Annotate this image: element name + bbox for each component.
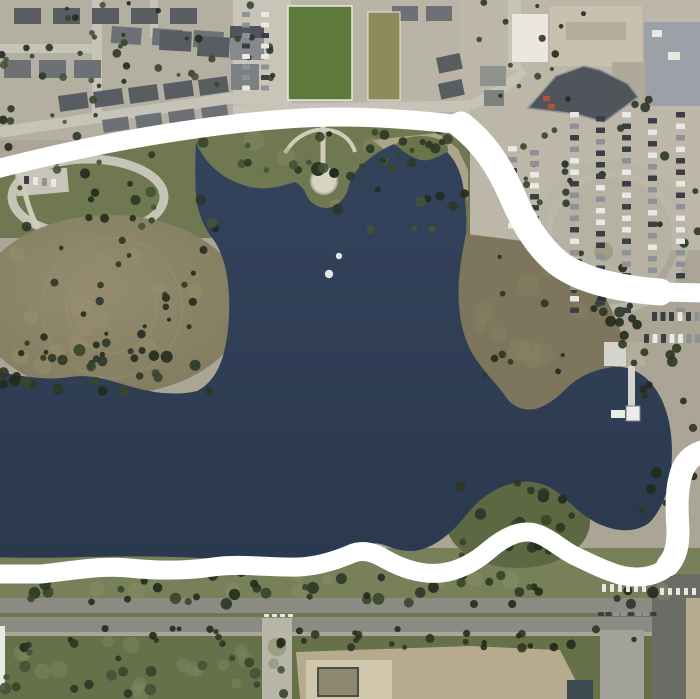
tree	[455, 481, 466, 492]
tree	[131, 354, 139, 362]
tree	[426, 634, 435, 643]
tree	[375, 187, 381, 193]
tree	[336, 573, 347, 584]
tree	[429, 225, 437, 233]
parked-car	[676, 250, 685, 256]
tree	[197, 661, 207, 671]
tree	[459, 539, 466, 546]
tree	[88, 77, 94, 83]
parked-car	[622, 124, 631, 130]
tree	[332, 204, 343, 215]
parked-car	[648, 176, 657, 182]
tree	[46, 44, 54, 52]
crosswalk-dash	[668, 588, 672, 595]
tree	[496, 571, 505, 580]
tree	[96, 297, 104, 305]
parked-car	[530, 150, 539, 156]
tree	[124, 689, 133, 698]
tree	[119, 386, 130, 397]
tree	[515, 587, 525, 597]
tree	[17, 185, 22, 190]
tree	[562, 189, 569, 196]
tree	[128, 348, 134, 354]
tree	[302, 584, 309, 591]
ground-mottle	[91, 311, 109, 329]
tree	[77, 51, 82, 56]
tree	[97, 84, 102, 89]
tree	[25, 341, 30, 346]
tree	[485, 578, 493, 586]
parked-car	[648, 153, 657, 159]
parked-car	[622, 158, 631, 164]
tree	[535, 4, 539, 8]
tree	[527, 487, 535, 495]
tree	[247, 1, 255, 9]
ground-mottle	[76, 321, 92, 337]
tree	[89, 96, 97, 104]
tree	[88, 196, 94, 202]
parked-car	[652, 312, 657, 321]
tree	[206, 626, 213, 633]
tree	[641, 392, 648, 399]
tree	[448, 201, 458, 211]
ground-mottle	[231, 679, 241, 689]
tree	[118, 667, 128, 677]
tree	[415, 196, 426, 207]
parked-car	[570, 147, 579, 153]
tree	[80, 168, 90, 178]
parked-car	[261, 65, 269, 70]
tree	[3, 674, 9, 680]
tree	[620, 331, 629, 340]
tree	[153, 583, 163, 593]
parked-car	[622, 227, 631, 233]
tree	[9, 375, 20, 386]
tree	[119, 237, 126, 244]
ground-mottle	[218, 660, 229, 671]
ground-mottle	[50, 661, 67, 678]
tree	[463, 630, 470, 637]
tree	[264, 167, 270, 173]
tree	[311, 630, 320, 639]
tree	[516, 633, 521, 638]
tree	[277, 638, 286, 647]
parked-car	[242, 75, 250, 80]
tree	[89, 30, 95, 36]
ground-mottle	[24, 310, 39, 325]
tree	[660, 151, 669, 160]
tree	[517, 84, 522, 89]
parked-car	[644, 334, 649, 343]
parked-car	[648, 118, 657, 124]
tree	[631, 637, 636, 642]
tree	[154, 373, 163, 382]
tree	[628, 315, 636, 323]
tree	[353, 637, 359, 643]
tree	[3, 57, 9, 63]
tree	[250, 668, 261, 679]
parked-car	[570, 158, 579, 164]
parked-car	[570, 112, 579, 118]
parked-car	[622, 112, 631, 118]
tree	[581, 11, 586, 16]
tree	[221, 598, 233, 610]
tree	[40, 355, 46, 361]
tree	[106, 670, 117, 681]
tree	[550, 67, 554, 71]
tree	[73, 132, 82, 141]
parked-car	[661, 312, 666, 321]
tree	[556, 523, 566, 533]
tree	[559, 24, 564, 29]
tree	[50, 113, 54, 117]
tree	[191, 271, 196, 276]
tree	[380, 157, 386, 163]
small-building	[484, 90, 504, 106]
tree	[481, 644, 488, 651]
tree	[296, 627, 303, 634]
tree	[517, 643, 526, 652]
tree	[307, 582, 319, 594]
parked-car	[622, 193, 631, 199]
tree	[373, 593, 385, 605]
parked-car	[622, 135, 631, 141]
parked-car	[530, 161, 539, 167]
tree	[93, 341, 100, 348]
tree	[254, 681, 261, 688]
tree	[215, 634, 222, 641]
tree	[261, 588, 272, 599]
crosswalk-dash	[264, 614, 269, 617]
tree	[539, 35, 546, 42]
tree	[552, 127, 558, 133]
tree	[500, 291, 506, 297]
tree	[439, 139, 445, 145]
parked-car	[261, 54, 269, 59]
tree	[161, 351, 173, 363]
tree	[665, 350, 675, 360]
tree	[27, 595, 34, 602]
tree	[541, 132, 548, 139]
tree	[631, 101, 638, 108]
parked-car	[676, 170, 685, 176]
parked-car	[261, 33, 269, 38]
ground-mottle	[234, 644, 247, 657]
parked-car	[678, 334, 683, 343]
tree	[39, 72, 47, 80]
tree	[198, 137, 209, 148]
tree	[329, 168, 339, 178]
tree	[137, 330, 146, 339]
house-roof	[74, 60, 101, 78]
tree	[647, 587, 659, 599]
tree	[145, 684, 157, 696]
parked-car	[622, 181, 631, 187]
tree	[498, 255, 502, 259]
tree	[130, 195, 140, 205]
parked-car	[570, 170, 579, 176]
rooftop-unit	[652, 30, 662, 37]
ground-mottle	[533, 343, 554, 364]
tree	[193, 593, 200, 600]
tree	[639, 507, 645, 513]
parked-car	[648, 141, 657, 147]
tree	[499, 351, 507, 359]
tree	[155, 8, 161, 14]
parked-car	[678, 312, 683, 321]
house-roof	[92, 8, 119, 24]
parked-car	[261, 44, 269, 49]
parked-car	[687, 334, 692, 343]
tree	[578, 250, 584, 256]
tree	[411, 226, 417, 232]
parked-car	[261, 86, 269, 91]
tree	[121, 79, 126, 84]
parked-car	[622, 262, 631, 268]
ground-mottle	[517, 274, 539, 296]
tree	[181, 282, 187, 288]
tree	[277, 666, 285, 674]
tree	[555, 368, 561, 374]
tree	[195, 35, 203, 43]
tree	[395, 626, 401, 632]
tree	[528, 643, 534, 649]
tree	[592, 625, 600, 633]
tree	[523, 181, 530, 188]
tree	[692, 188, 698, 194]
tree	[645, 96, 653, 104]
tree	[25, 642, 32, 649]
parked-car	[596, 116, 605, 122]
ground-mottle	[508, 339, 531, 362]
parked-car	[648, 130, 657, 136]
parked-car	[648, 222, 657, 228]
tree	[63, 120, 67, 124]
tree	[402, 645, 407, 650]
fountain-dot	[336, 253, 342, 259]
tree	[7, 105, 14, 112]
tree	[279, 689, 288, 698]
tree	[395, 152, 401, 158]
ground-mottle	[102, 636, 114, 648]
ground-mottle	[490, 327, 507, 344]
small-structure	[567, 680, 593, 699]
parked-car	[570, 250, 579, 256]
parked-car	[596, 162, 605, 168]
tree	[651, 467, 662, 478]
parked-car	[622, 308, 631, 314]
parked-car	[695, 334, 700, 343]
house-roof	[131, 8, 158, 24]
parked-car	[570, 204, 579, 210]
tree	[657, 221, 663, 227]
parked-car	[648, 187, 657, 193]
tree	[185, 598, 192, 605]
tree	[200, 246, 208, 254]
ground-mottle	[177, 658, 191, 672]
sports-field-green	[288, 6, 352, 100]
tree	[163, 304, 170, 311]
tree	[44, 350, 49, 355]
tree	[53, 166, 61, 174]
parked-car	[42, 178, 47, 186]
tree	[645, 381, 652, 388]
tree	[367, 226, 375, 234]
parked-car	[643, 612, 649, 616]
crosswalk-dash	[602, 584, 606, 592]
rooftop-unit	[668, 52, 680, 60]
tree	[306, 160, 312, 166]
tree	[541, 299, 549, 307]
tree	[562, 200, 570, 208]
tree	[409, 148, 414, 153]
tree	[93, 355, 100, 362]
tree	[91, 189, 99, 197]
parked-car	[570, 124, 579, 130]
tree	[4, 143, 12, 151]
tree	[245, 143, 251, 149]
tree	[307, 594, 313, 600]
tree	[177, 626, 182, 631]
tree	[148, 151, 155, 158]
tree	[81, 311, 87, 317]
tree	[475, 508, 486, 519]
tree	[191, 73, 198, 80]
crosswalk-dash	[618, 584, 622, 592]
parked-car	[648, 164, 657, 170]
tree	[170, 626, 176, 632]
parked-car	[570, 227, 579, 233]
tree	[235, 36, 241, 42]
parked-car	[648, 256, 657, 262]
red-awning	[543, 96, 550, 101]
tree	[98, 386, 108, 396]
parked-car	[596, 220, 605, 226]
tree	[117, 586, 124, 593]
tree	[30, 54, 35, 59]
parked-car	[570, 135, 579, 141]
tree	[124, 596, 131, 603]
tree	[463, 639, 469, 645]
tree	[561, 353, 565, 357]
tree	[149, 350, 160, 361]
tree	[568, 512, 575, 519]
tree	[491, 355, 498, 362]
tree	[428, 582, 439, 593]
tree	[85, 214, 92, 221]
parked-car	[530, 183, 539, 189]
tree	[65, 15, 71, 21]
parked-car	[676, 181, 685, 187]
tree	[425, 141, 433, 149]
parked-car	[676, 124, 685, 130]
parked-car	[648, 199, 657, 205]
parked-car	[51, 179, 56, 187]
tree	[289, 160, 298, 169]
tree	[57, 355, 67, 365]
parked-car	[648, 210, 657, 216]
parked-car	[242, 65, 250, 70]
parked-car	[636, 612, 642, 616]
road-median	[0, 613, 700, 617]
tree	[121, 33, 125, 37]
tree	[167, 318, 171, 322]
tree	[372, 129, 379, 136]
tree	[615, 318, 624, 327]
ground-mottle	[188, 285, 203, 300]
pier-head	[626, 406, 640, 421]
tree	[138, 223, 145, 230]
red-awning	[548, 104, 555, 109]
tree	[146, 666, 157, 677]
parked-car	[648, 233, 657, 239]
tree	[407, 158, 416, 167]
parked-car	[648, 245, 657, 251]
tree	[327, 131, 333, 137]
tree	[26, 649, 33, 656]
tree	[97, 282, 104, 289]
tree	[162, 292, 167, 297]
tree	[363, 592, 370, 599]
tree	[127, 181, 133, 187]
tree	[88, 599, 95, 606]
tree	[127, 253, 132, 258]
parked-car	[676, 204, 685, 210]
tree	[508, 63, 513, 68]
tree	[526, 584, 532, 590]
tree	[562, 168, 569, 175]
tree	[96, 160, 101, 165]
crosswalk-dash	[660, 588, 664, 595]
parked-car	[261, 75, 269, 80]
tree	[520, 143, 527, 150]
tree	[206, 217, 217, 228]
parked-car	[653, 334, 658, 343]
tree	[123, 62, 130, 69]
tree	[190, 360, 201, 371]
parked-car	[676, 262, 685, 268]
tree	[59, 246, 64, 251]
tree	[91, 377, 100, 386]
tree	[436, 192, 445, 201]
tree	[420, 139, 426, 145]
tree	[640, 348, 648, 356]
tree	[460, 189, 469, 198]
tree	[189, 298, 197, 306]
parked-car	[596, 139, 605, 145]
branch-road	[262, 618, 292, 699]
tree	[70, 639, 79, 648]
tree	[52, 384, 63, 395]
parked-car	[242, 44, 250, 49]
parked-car	[596, 300, 605, 306]
tree	[219, 640, 226, 647]
tree	[87, 362, 96, 371]
parked-car	[242, 12, 250, 17]
small-building	[480, 66, 506, 86]
tree	[599, 307, 608, 316]
tree	[631, 360, 638, 367]
satellite-map-view[interactable]	[0, 0, 700, 699]
ground-mottle	[35, 664, 50, 679]
crosswalk-dash	[676, 588, 680, 595]
ground-mottle	[89, 582, 105, 598]
tree	[229, 655, 235, 661]
parked-car	[622, 250, 631, 256]
parked-car	[596, 151, 605, 157]
parked-car	[570, 296, 579, 302]
tree	[102, 338, 111, 347]
